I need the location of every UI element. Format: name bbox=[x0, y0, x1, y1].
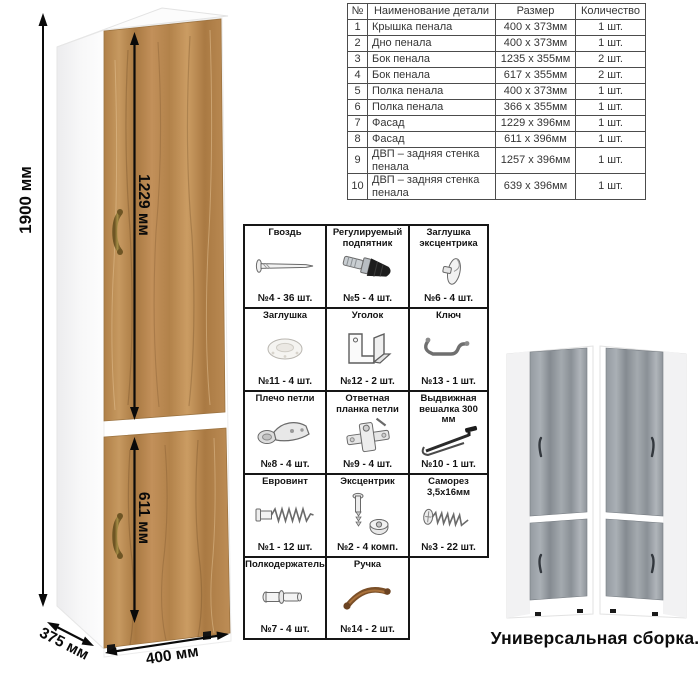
hardware-item: Гвоздь№4 - 36 шт. bbox=[243, 224, 327, 309]
hardware-item: Выдвижная вешалка 300 мм№10 - 1 шт. bbox=[408, 390, 489, 475]
table-cell: 611 x 396мм bbox=[496, 132, 576, 148]
hardware-item-count: №10 - 1 шт. bbox=[421, 459, 476, 472]
table-cell: 1257 x 396мм bbox=[496, 148, 576, 174]
table-cell: 1235 x 355мм bbox=[496, 52, 576, 68]
universal-assembly-illustration bbox=[497, 340, 697, 630]
dimension-height-label: 1900 мм bbox=[16, 166, 35, 234]
hardware-item-count: №1 - 12 шт. bbox=[258, 542, 313, 555]
hardware-item-name: Уголок bbox=[352, 311, 383, 322]
table-cell: ДВП – задняя стенка пенала bbox=[368, 174, 496, 200]
hardware-item-count: №11 - 4 шт. bbox=[258, 376, 312, 389]
duo-right-top-door bbox=[606, 348, 663, 516]
hardware-item-count: №14 - 2 шт. bbox=[340, 624, 395, 637]
table-cell: Бок пенала bbox=[368, 52, 496, 68]
cabinet-top-door bbox=[104, 19, 225, 421]
table-header-cell: № bbox=[348, 4, 368, 20]
hardware-item-name: Гвоздь bbox=[268, 228, 301, 239]
hardware-item: Уголок№12 - 2 шт. bbox=[325, 307, 410, 392]
table-cell: 2 шт. bbox=[576, 52, 646, 68]
table-header-cell: Размер bbox=[496, 4, 576, 20]
dimension-top-door-label: 1229 мм bbox=[135, 174, 152, 236]
hardware-item-name: Евровинт bbox=[262, 477, 308, 488]
hardware-item-name: Плечо петли bbox=[255, 394, 314, 405]
adjustable-foot-icon bbox=[335, 249, 401, 293]
table-cell: 1 шт. bbox=[576, 100, 646, 116]
duo-left-top-door bbox=[530, 348, 587, 516]
cap-icon bbox=[252, 322, 318, 377]
table-cell: Полка пенала bbox=[368, 84, 496, 100]
table-row: 1Крышка пенала400 x 373мм1 шт. bbox=[348, 20, 646, 36]
table-cell: 617 x 355мм bbox=[496, 68, 576, 84]
cabinet-bottom-door bbox=[104, 428, 230, 648]
table-row: 10ДВП – задняя стенка пенала639 x 396мм1… bbox=[348, 174, 646, 200]
hardware-item-count: №4 - 36 шт. bbox=[258, 293, 313, 306]
hardware-item-name: Заглушка bbox=[263, 311, 307, 322]
hardware-item-name: Заглушка эксцентрика bbox=[411, 228, 486, 249]
table-cell: ДВП – задняя стенка пенала bbox=[368, 148, 496, 174]
table-header-cell: Наименование детали bbox=[368, 4, 496, 20]
parts-table-body: 1Крышка пенала400 x 373мм1 шт.2Дно пенал… bbox=[348, 20, 646, 200]
hardware-item-name: Ключ bbox=[436, 311, 461, 322]
hardware-item: Ответная планка петли№9 - 4 шт. bbox=[325, 390, 410, 475]
duo-cabinet-left bbox=[507, 346, 593, 618]
table-row: 2Дно пенала400 x 373мм1 шт. bbox=[348, 36, 646, 52]
hardware-item-name: Регулируемый подпятник bbox=[328, 228, 407, 249]
hanger-rod-icon bbox=[416, 426, 482, 460]
parts-table: №Наименование деталиРазмерКоличество 1Кр… bbox=[347, 3, 646, 200]
cam-lock-icon bbox=[335, 488, 401, 543]
table-cell: 4 bbox=[348, 68, 368, 84]
corner-bracket-icon bbox=[335, 322, 401, 377]
hardware-row: Полкодержатель№7 - 4 шт.Ручка№14 - 2 шт. bbox=[243, 556, 489, 640]
hardware-item-name: Ответная планка петли bbox=[328, 394, 407, 415]
hardware-item-count: №9 - 4 шт. bbox=[343, 459, 392, 472]
hardware-item-count: №2 - 4 комп. bbox=[337, 542, 398, 555]
table-cell: 400 x 373мм bbox=[496, 20, 576, 36]
table-row: 6Полка пенала366 x 355мм1 шт. bbox=[348, 100, 646, 116]
hardware-item-count: №7 - 4 шт. bbox=[260, 624, 309, 637]
hinge-plate-icon bbox=[335, 415, 401, 459]
hardware-row: Гвоздь№4 - 36 шт.Регулируемый подпятник№… bbox=[243, 224, 489, 309]
table-cell: 1 шт. bbox=[576, 84, 646, 100]
hardware-item: Заглушка№11 - 4 шт. bbox=[243, 307, 327, 392]
universal-assembly-caption: Универсальная сборка. bbox=[486, 628, 700, 649]
table-cell: 7 bbox=[348, 116, 368, 132]
table-header-cell: Количество bbox=[576, 4, 646, 20]
table-cell: 1 bbox=[348, 20, 368, 36]
cabinet-side-panel bbox=[57, 30, 104, 649]
euroscrew-icon bbox=[252, 488, 318, 543]
table-cell: 2 шт. bbox=[576, 68, 646, 84]
cam-cover-icon bbox=[416, 249, 482, 293]
parts-table-header-row: №Наименование деталиРазмерКоличество bbox=[348, 4, 646, 20]
hardware-item-count: №12 - 2 шт. bbox=[340, 376, 395, 389]
table-cell: 639 x 396мм bbox=[496, 174, 576, 200]
hardware-item: Ручка№14 - 2 шт. bbox=[325, 556, 410, 640]
hinge-arm-icon bbox=[252, 405, 318, 460]
nail-icon bbox=[252, 239, 318, 294]
hex-key-icon bbox=[416, 322, 482, 377]
table-cell: 1 шт. bbox=[576, 20, 646, 36]
hardware-item: Эксцентрик№2 - 4 комп. bbox=[325, 473, 410, 558]
hardware-item-name: Саморез 3,5х16мм bbox=[411, 477, 486, 498]
table-row: 4Бок пенала617 x 355мм2 шт. bbox=[348, 68, 646, 84]
hardware-item: Евровинт№1 - 12 шт. bbox=[243, 473, 327, 558]
cabinet-body bbox=[57, 8, 231, 657]
dimension-height: 1900 мм bbox=[16, 13, 48, 607]
table-row: 7Фасад1229 x 396мм1 шт. bbox=[348, 116, 646, 132]
duo-cabinet-right bbox=[600, 346, 686, 618]
hardware-item: Ключ№13 - 1 шт. bbox=[408, 307, 489, 392]
table-cell: Фасад bbox=[368, 116, 496, 132]
table-row: 5Полка пенала400 x 373мм1 шт. bbox=[348, 84, 646, 100]
table-cell: 1 шт. bbox=[576, 148, 646, 174]
hardware-row: Заглушка№11 - 4 шт.Уголок№12 - 2 шт.Ключ… bbox=[243, 307, 489, 392]
table-cell: Крышка пенала bbox=[368, 20, 496, 36]
table-cell: 1229 x 396мм bbox=[496, 116, 576, 132]
hardware-item-count: №5 - 4 шт. bbox=[343, 293, 392, 306]
table-cell: Фасад bbox=[368, 132, 496, 148]
hardware-item-name: Ручка bbox=[354, 560, 381, 571]
table-cell: 400 x 373мм bbox=[496, 84, 576, 100]
hardware-item-count: №3 - 22 шт. bbox=[421, 542, 476, 555]
table-row: 8Фасад611 x 396мм1 шт. bbox=[348, 132, 646, 148]
table-cell: Полка пенала bbox=[368, 100, 496, 116]
table-cell: 3 bbox=[348, 52, 368, 68]
hardware-item: Саморез 3,5х16мм№3 - 22 шт. bbox=[408, 473, 489, 558]
hardware-row: Плечо петли№8 - 4 шт.Ответная планка пет… bbox=[243, 390, 489, 475]
table-cell: Бок пенала bbox=[368, 68, 496, 84]
shelf-pin-icon bbox=[252, 571, 318, 625]
table-cell: 8 bbox=[348, 132, 368, 148]
table-row: 3Бок пенала1235 x 355мм2 шт. bbox=[348, 52, 646, 68]
screw-icon bbox=[416, 498, 482, 542]
hardware-row: Евровинт№1 - 12 шт.Эксцентрик№2 - 4 комп… bbox=[243, 473, 489, 558]
table-cell: 1 шт. bbox=[576, 174, 646, 200]
table-cell: 6 bbox=[348, 100, 368, 116]
hardware-item-name: Эксцентрик bbox=[340, 477, 395, 488]
table-row: 9ДВП – задняя стенка пенала1257 x 396мм1… bbox=[348, 148, 646, 174]
table-cell: 5 bbox=[348, 84, 368, 100]
hardware-item: Полкодержатель№7 - 4 шт. bbox=[243, 556, 327, 640]
hardware-item-count: №6 - 4 шт. bbox=[424, 293, 473, 306]
hardware-grid: Гвоздь№4 - 36 шт.Регулируемый подпятник№… bbox=[243, 224, 489, 640]
table-cell: 1 шт. bbox=[576, 132, 646, 148]
hardware-item-count: №8 - 4 шт. bbox=[260, 459, 309, 472]
handle-icon bbox=[335, 571, 401, 625]
table-cell: 1 шт. bbox=[576, 116, 646, 132]
hardware-item: Заглушка эксцентрика№6 - 4 шт. bbox=[408, 224, 489, 309]
dimension-bottom-door-label: 611 мм bbox=[135, 492, 152, 544]
table-cell: 2 bbox=[348, 36, 368, 52]
hardware-item-count: №13 - 1 шт. bbox=[421, 376, 476, 389]
hardware-item: Плечо петли№8 - 4 шт. bbox=[243, 390, 327, 475]
table-cell: 366 x 355мм bbox=[496, 100, 576, 116]
table-cell: 9 bbox=[348, 148, 368, 174]
hardware-item: Регулируемый подпятник№5 - 4 шт. bbox=[325, 224, 410, 309]
assembly-sheet: { "dimensions": { "height": "1900 мм", "… bbox=[0, 0, 700, 683]
table-cell: 400 x 373мм bbox=[496, 36, 576, 52]
table-cell: 1 шт. bbox=[576, 36, 646, 52]
hardware-item-name: Полкодержатель bbox=[245, 560, 325, 571]
table-cell: 10 bbox=[348, 174, 368, 200]
table-cell: Дно пенала bbox=[368, 36, 496, 52]
